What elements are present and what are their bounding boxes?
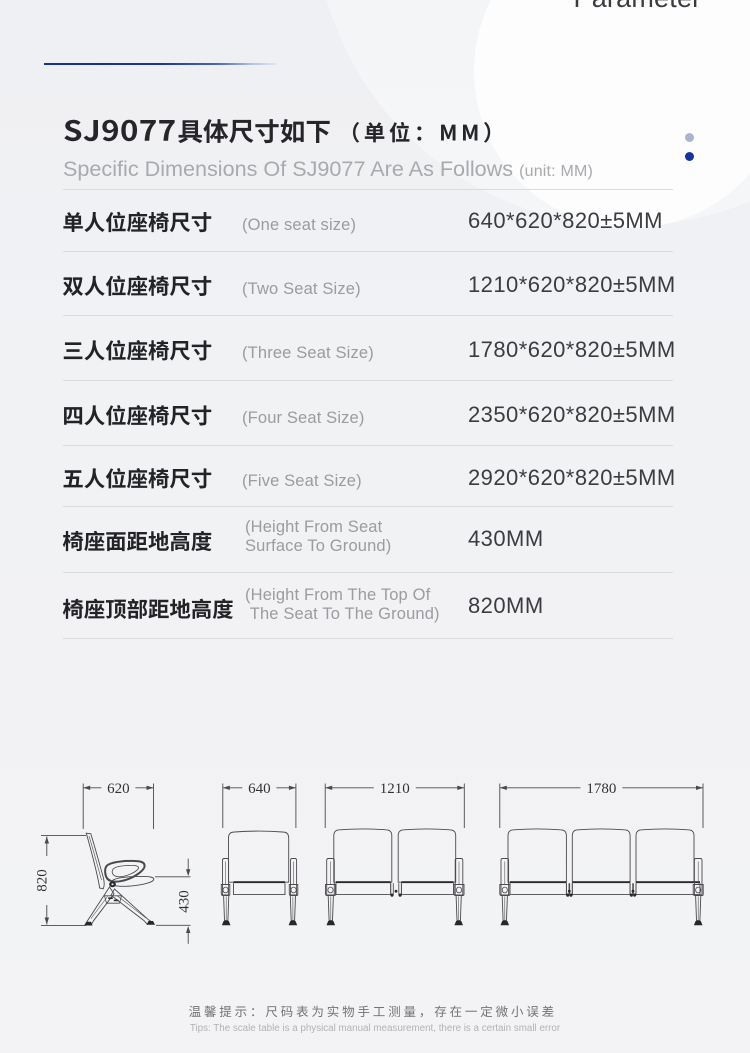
svg-text:640: 640	[248, 781, 271, 797]
svg-text:820: 820	[35, 869, 51, 892]
svg-text:1780: 1780	[586, 781, 616, 797]
svg-text:1210: 1210	[380, 781, 410, 797]
svg-text:430: 430	[177, 890, 193, 913]
svg-text:620: 620	[107, 781, 130, 797]
